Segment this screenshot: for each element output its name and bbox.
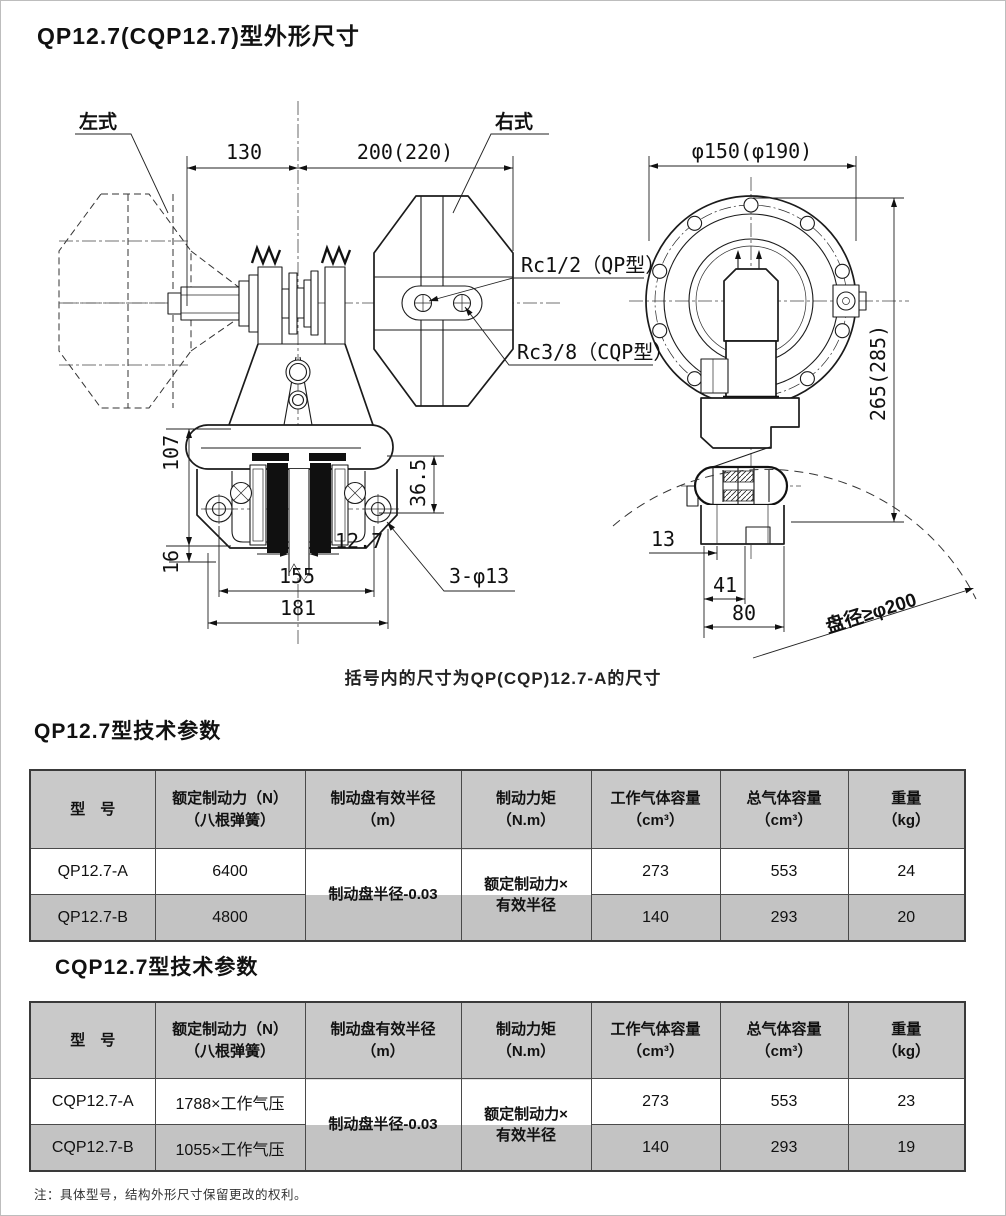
col-total-volume: 总气体容量（cm³）	[720, 1002, 848, 1079]
cell-model: QP12.7-B	[30, 895, 155, 942]
cell-radius-merged: 制动盘半径-0.03	[305, 849, 461, 942]
cell-weight: 23	[848, 1079, 965, 1125]
col-total-volume: 总气体容量（cm³）	[720, 770, 848, 849]
cell-total-vol: 293	[720, 895, 848, 942]
cell-force: 1788×工作气压	[155, 1079, 305, 1125]
dim-107: 107	[159, 435, 183, 471]
col-working-volume: 工作气体容量（cm³）	[591, 1002, 720, 1079]
col-effective-radius: 制动盘有效半径（m）	[305, 1002, 461, 1079]
table-row: CQP12.7-A 1788×工作气压 制动盘半径-0.03 额定制动力×有效半…	[30, 1079, 965, 1125]
drawing-caption: 括号内的尺寸为QP(CQP)12.7-A的尺寸	[1, 664, 1005, 689]
col-weight: 重量（kg）	[848, 1002, 965, 1079]
rc-qp-label: Rc1/2（QP型）	[521, 253, 665, 277]
right-type-label: 右式	[494, 110, 533, 133]
cell-total-vol: 553	[720, 849, 848, 895]
outline-dimension-drawing: .ol{fill:none;stroke:#1b1b1b;stroke-widt…	[1, 1, 1006, 701]
dim-16: 16	[159, 550, 183, 574]
dim-12-7: 12.7	[335, 529, 383, 553]
dim-flange: φ150(φ190)	[692, 139, 812, 163]
col-model: 型 号	[30, 1002, 155, 1079]
cell-weight: 19	[848, 1125, 965, 1172]
datasheet-page: QP12.7(CQP12.7)型外形尺寸 .ol{fill:none;strok…	[0, 0, 1006, 1216]
cell-force: 1055×工作气压	[155, 1125, 305, 1172]
col-working-volume: 工作气体容量（cm³）	[591, 770, 720, 849]
col-model: 型 号	[30, 770, 155, 849]
rc-cqp-label: Rc3/8（CQP型）	[517, 340, 673, 364]
dim-holes: 3-φ13	[449, 564, 509, 588]
table-row: QP12.7-A 6400 制动盘半径-0.03 额定制动力×有效半径 273 …	[30, 849, 965, 895]
caliper	[186, 425, 397, 581]
table-qp-title: QP12.7型技术参数	[34, 715, 221, 745]
cell-model: CQP12.7-B	[30, 1125, 155, 1172]
col-torque: 制动力矩（N.m）	[461, 770, 591, 849]
table-cqp: 型 号 额定制动力（N）（八根弹簧） 制动盘有效半径（m） 制动力矩（N.m） …	[29, 1001, 966, 1172]
cell-radius-merged: 制动盘半径-0.03	[305, 1079, 461, 1172]
cell-torque-merged: 额定制动力×有效半径	[461, 849, 591, 942]
cell-work-vol: 273	[591, 849, 720, 895]
dim-265-285: 265(285)	[866, 325, 890, 421]
dimensions: 左式 右式 130 200(220) φ150(φ190) 265(285) R…	[75, 110, 919, 638]
cell-work-vol: 140	[591, 1125, 720, 1172]
col-rated-force: 额定制动力（N）（八根弹簧）	[155, 770, 305, 849]
table-cqp-header-row: 型 号 额定制动力（N）（八根弹簧） 制动盘有效半径（m） 制动力矩（N.m） …	[30, 1002, 965, 1079]
cell-work-vol: 140	[591, 895, 720, 942]
cell-torque-merged: 额定制动力×有效半径	[461, 1079, 591, 1172]
cell-total-vol: 293	[720, 1125, 848, 1172]
dim-36-5: 36.5	[406, 459, 430, 507]
dim-80: 80	[732, 601, 756, 625]
lever	[229, 344, 373, 425]
cell-model: CQP12.7-A	[30, 1079, 155, 1125]
cell-weight: 20	[848, 895, 965, 942]
disc-diameter-note: 盘径≥φ200	[823, 588, 919, 638]
col-rated-force: 额定制动力（N）（八根弹簧）	[155, 1002, 305, 1079]
dim-181: 181	[280, 596, 316, 620]
table-cqp-title: CQP12.7型技术参数	[55, 951, 258, 981]
table-qp: 型 号 额定制动力（N）（八根弹簧） 制动盘有效半径（m） 制动力矩（N.m） …	[29, 769, 966, 942]
clevis-assembly	[168, 248, 350, 344]
left-type-label: 左式	[79, 110, 117, 133]
cell-total-vol: 553	[720, 1079, 848, 1125]
cell-force: 6400	[155, 849, 305, 895]
side-view	[613, 196, 976, 658]
dim-155: 155	[279, 564, 315, 588]
col-torque: 制动力矩（N.m）	[461, 1002, 591, 1079]
front-view	[59, 194, 513, 581]
dim-13: 13	[651, 527, 675, 551]
cell-work-vol: 273	[591, 1079, 720, 1125]
col-effective-radius: 制动盘有效半径（m）	[305, 770, 461, 849]
col-weight: 重量（kg）	[848, 770, 965, 849]
dim-200-220: 200(220)	[357, 140, 453, 164]
cell-force: 4800	[155, 895, 305, 942]
cell-weight: 24	[848, 849, 965, 895]
table-qp-header-row: 型 号 额定制动力（N）（八根弹簧） 制动盘有效半径（m） 制动力矩（N.m） …	[30, 770, 965, 849]
bracket	[687, 250, 799, 544]
footnote: 注：具体型号，结构外形尺寸保留更改的权利。	[34, 1184, 307, 1203]
dim-41: 41	[713, 573, 737, 597]
cell-model: QP12.7-A	[30, 849, 155, 895]
dim-130: 130	[226, 140, 262, 164]
